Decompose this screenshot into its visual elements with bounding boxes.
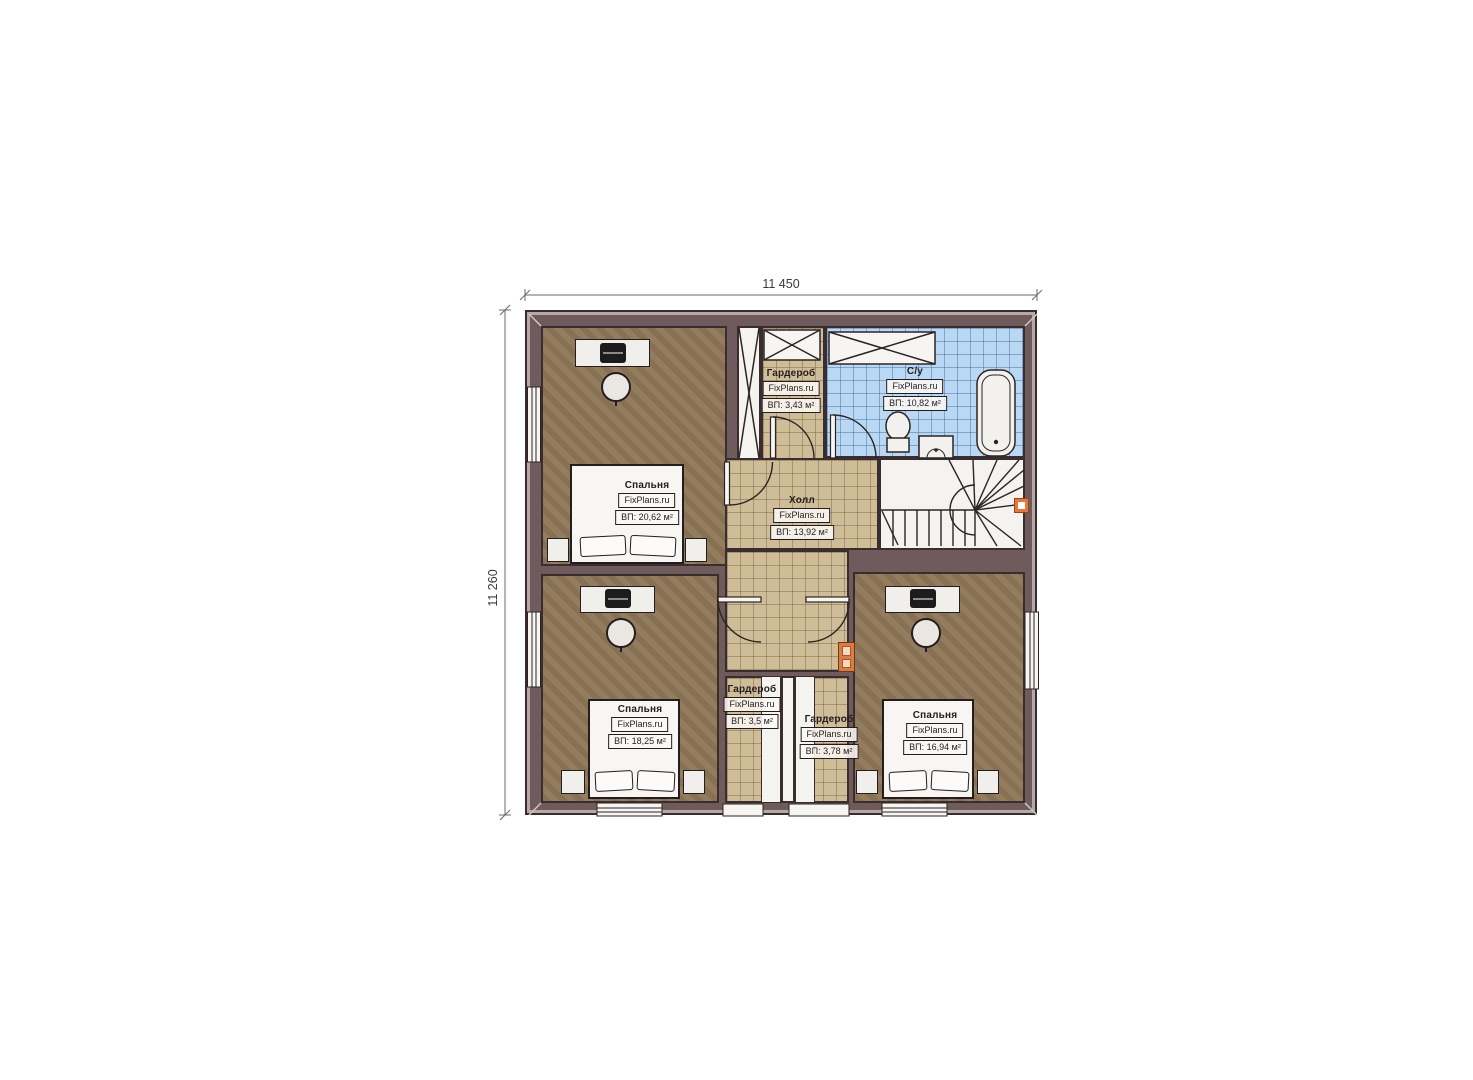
dimension-top-label: 11 450 <box>762 277 799 291</box>
room-area: ВП: 18,25 м² <box>608 734 672 749</box>
room-label-bedroom-bottom-left: Спальня FixPlans.ru ВП: 18,25 м² <box>608 704 672 749</box>
room-staircase <box>879 458 1025 550</box>
nightstand <box>683 770 705 794</box>
room-area: ВП: 20,62 м² <box>615 510 679 525</box>
pillow <box>931 770 970 792</box>
room-hall-lower <box>725 550 849 672</box>
pillow <box>637 770 676 792</box>
room-label-wardrobe-bottom-left: Гардероб FixPlans.ru ВП: 3,5 м² <box>723 684 780 729</box>
pillow <box>595 770 634 792</box>
chair-icon <box>606 618 636 648</box>
room-watermark: FixPlans.ru <box>618 493 675 508</box>
room-watermark: FixPlans.ru <box>611 717 668 732</box>
wardrobe-passage <box>781 676 795 803</box>
nightstand <box>977 770 999 794</box>
room-name: Спальня <box>618 704 663 715</box>
room-name: Спальня <box>913 710 958 721</box>
room-name: Гардероб <box>805 714 854 725</box>
room-label-bedroom-top-left: Спальня FixPlans.ru ВП: 20,62 м² <box>615 480 679 525</box>
room-area: ВП: 3,5 м² <box>725 714 779 729</box>
closet-strip <box>737 326 761 460</box>
pillow <box>889 770 928 792</box>
room-name: Холл <box>789 495 815 506</box>
nightstand <box>856 770 878 794</box>
room-watermark: FixPlans.ru <box>800 727 857 742</box>
room-label-bedroom-bottom-right: Спальня FixPlans.ru ВП: 16,94 м² <box>903 710 967 755</box>
room-label-wardrobe-bottom-right: Гардероб FixPlans.ru ВП: 3,78 м² <box>800 714 859 759</box>
laptop-icon <box>605 589 631 608</box>
room-name: Гардероб <box>767 368 816 379</box>
room-area: ВП: 13,92 м² <box>770 525 834 540</box>
nightstand <box>561 770 585 794</box>
floor-plan-page: 11 450 11 260 <box>0 0 1473 1080</box>
nightstand <box>547 538 569 562</box>
room-watermark: FixPlans.ru <box>723 697 780 712</box>
dimension-top: 11 450 <box>515 276 1047 304</box>
laptop-icon <box>910 589 936 608</box>
room-area: ВП: 10,82 м² <box>883 396 947 411</box>
nightstand <box>685 538 707 562</box>
room-watermark: FixPlans.ru <box>773 508 830 523</box>
chair-icon <box>601 372 631 402</box>
room-watermark: FixPlans.ru <box>886 379 943 394</box>
dimension-left: 11 260 <box>483 300 511 828</box>
chimney-flue <box>838 642 855 672</box>
pillow <box>630 535 677 557</box>
floor-plan: Спальня FixPlans.ru ВП: 20,62 м² Гардеро… <box>525 310 1037 815</box>
room-name: Спальня <box>625 480 670 491</box>
room-label-wardrobe-top: Гардероб FixPlans.ru ВП: 3,43 м² <box>762 368 821 413</box>
room-area: ВП: 16,94 м² <box>903 740 967 755</box>
room-watermark: FixPlans.ru <box>762 381 819 396</box>
dimension-left-label: 11 260 <box>486 569 500 606</box>
chair-icon <box>911 618 941 648</box>
room-name: Гардероб <box>728 684 777 695</box>
room-area: ВП: 3,43 м² <box>762 398 821 413</box>
laptop-icon <box>600 343 626 363</box>
room-name: С/у <box>907 366 923 377</box>
room-area: ВП: 3,78 м² <box>800 744 859 759</box>
room-watermark: FixPlans.ru <box>906 723 963 738</box>
room-label-hall: Холл FixPlans.ru ВП: 13,92 м² <box>770 495 834 540</box>
wall-marker-orange <box>1014 498 1029 513</box>
pillow <box>580 535 627 557</box>
room-label-bathroom: С/у FixPlans.ru ВП: 10,82 м² <box>883 366 947 411</box>
